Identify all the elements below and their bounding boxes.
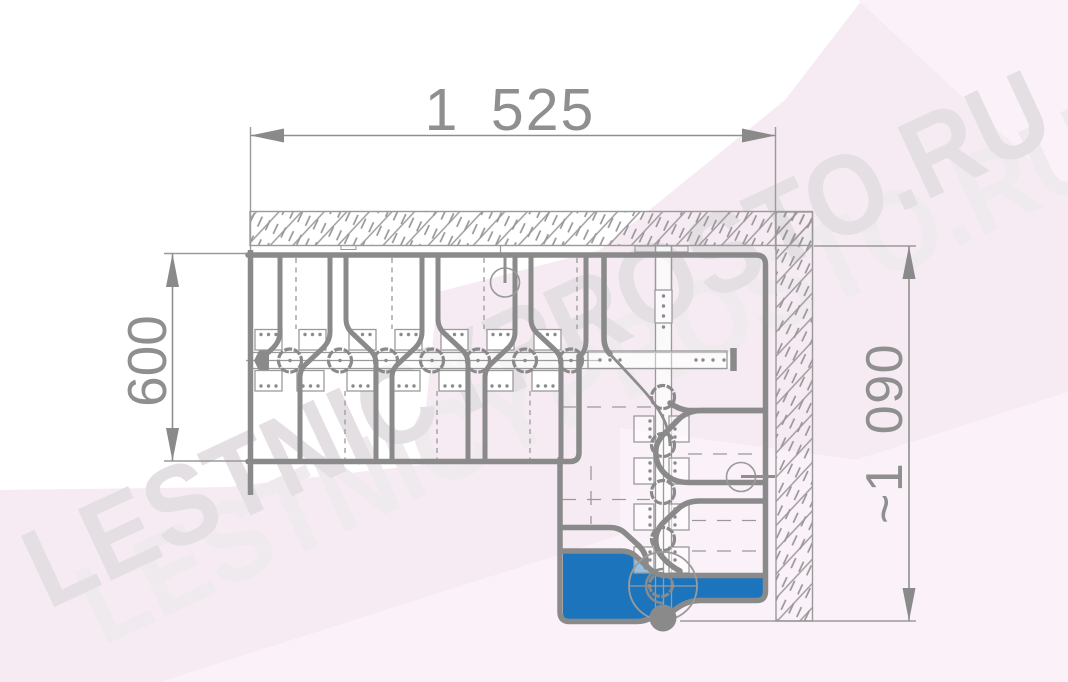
svg-text:600: 600 [116, 315, 178, 407]
svg-text:1 525: 1 525 [425, 77, 596, 143]
svg-text:~1 090: ~1 090 [856, 343, 914, 524]
